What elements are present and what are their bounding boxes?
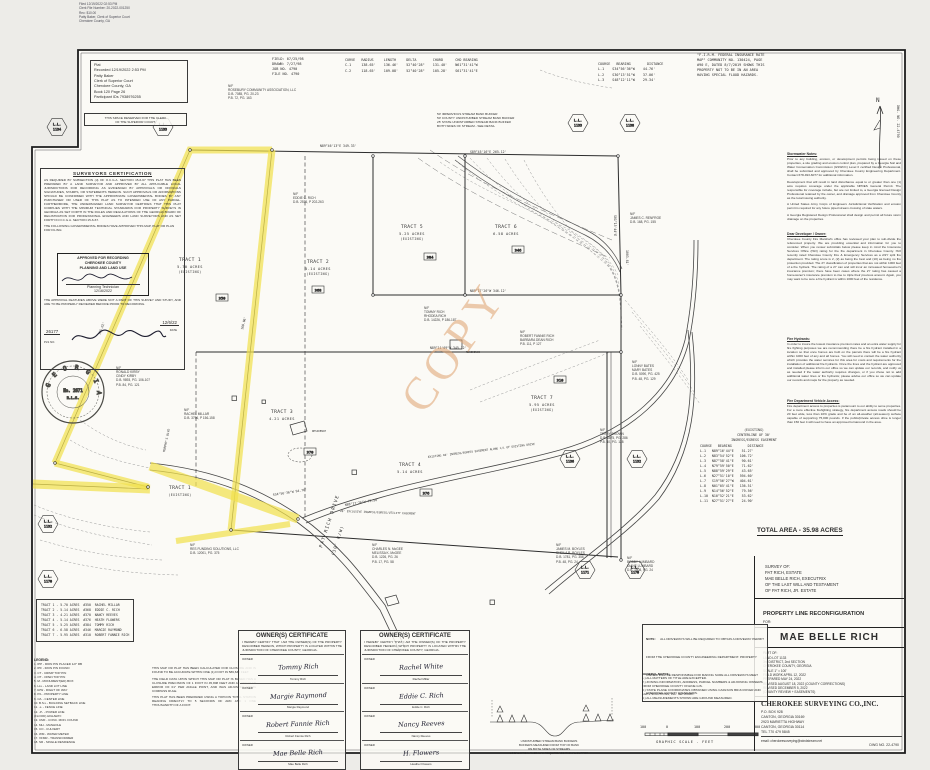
- owner-printed-name: Heather Flowers: [380, 761, 462, 767]
- firm-flood-note: "F.I.R.M. FEDERAL INSURANCE RATEMAP" COM…: [697, 53, 827, 77]
- ll-num: 1138: [626, 124, 634, 128]
- clerk-reserved-box: THIS SPACE RESERVED FOR THE CLERKOF THE …: [84, 113, 187, 126]
- tract-name: TRACT 2: [288, 260, 348, 267]
- owner-label: OWNER: [364, 743, 375, 747]
- adjoiner-line: P.B. 48, PG. 24: [556, 560, 585, 564]
- date-label: DATE: [170, 328, 177, 332]
- bearing-label: 1003.81': [625, 250, 629, 265]
- owner-certificate-right: OWNER(S) CERTIFICATE I HEREBY CERTIFY TH…: [360, 630, 470, 770]
- owner-label: OWNER: [242, 686, 253, 690]
- adjoiner-mcgee: N/FCHARLES N. McGEEMELISSA K. McGEED.B. …: [372, 543, 403, 564]
- adjoiner-line: P.B. 40, PG. 128: [600, 440, 628, 444]
- adjoiner-rosebury: N/FROSEBURY COMMUNITY ASSOCIATION, LLCD.…: [228, 84, 296, 101]
- scanned-plat-page: { "filing_stamp": { "lines": ["Filed 12/…: [0, 0, 930, 768]
- approval-date: 12/16/2022: [60, 289, 146, 293]
- tract-name: TRACT 4: [380, 463, 440, 470]
- owner-printed-name: Nancy Reeves: [380, 732, 462, 738]
- efiling-stamp-line: Cherokee County, GA: [79, 19, 130, 23]
- tract-acres: 4.21 ACRES: [252, 417, 312, 422]
- tract-5-label: TRACT 5 5.25 ACRES (EXISTING): [382, 225, 442, 242]
- adjoiner-line: P.B. 111, P 127: [520, 342, 554, 346]
- firm-note-line: HAVING SPECIAL FLOOD HAZARDS.: [697, 73, 827, 78]
- legend-item: 18. SR - SINGLE RESIDENCE: [34, 740, 146, 744]
- tract-name: TRACT 5: [382, 225, 442, 232]
- owner-cert-title: OWNER(S) CERTIFICATE: [362, 632, 468, 640]
- owner-cert-body: I HEREBY CERTIFY THAT I AM THE OWNER(S) …: [240, 640, 344, 654]
- buffer-detail-line: LOCAL ORDINANCE MAY REQUIRE ADDITIONAL B…: [478, 752, 620, 756]
- owner-signature: Robert Fannie Rich: [266, 719, 330, 729]
- ll-num: 1132: [44, 525, 52, 529]
- stream-buffer-note: 50' IMPERVIOUS STREAM BANK BUFFER50' COU…: [437, 112, 514, 128]
- tract-name: TRACT 7: [512, 396, 572, 403]
- ll-num: 1171: [581, 571, 589, 575]
- owner-signature: Rachel White: [399, 662, 443, 672]
- ll-num: 1170: [44, 580, 52, 584]
- address-label: 384: [427, 255, 435, 260]
- general-note-item: 4.) ALL MEASUREMENTS SHOWN ARE GROUND ME…: [642, 696, 764, 700]
- ll-num: 1133: [574, 124, 582, 128]
- scale-tick-label: 0: [666, 725, 668, 729]
- owner-signature: Nancy Reeves: [398, 719, 445, 729]
- buffer-detail-caption: UNDISTURBED STREAM BANK BUFFERSBUFFERS M…: [478, 740, 620, 756]
- adjoiner-line: P.B. 48, PG. 129: [632, 377, 660, 381]
- signature-date: 12/6/22: [160, 320, 179, 326]
- owner-printed-name: Tommy Rich: [258, 675, 338, 681]
- stormwater-notes: Stormwater Notes: Prior to any building,…: [787, 152, 901, 223]
- owner-row: OWNER Eddie C. Rich Eddie C. Rich: [362, 683, 468, 712]
- ll-num: 1136: [566, 460, 574, 464]
- tract-name: TRACT 1: [160, 258, 220, 265]
- survey-of-line: OF PAT RICH, JR. ESTATE: [765, 588, 904, 594]
- firm-address-line: TEL 770 479 5845: [761, 730, 902, 735]
- firm-address: P.O. BOX 928CANTON, GEORGIA 301692923 MA…: [761, 710, 902, 734]
- ll-num: 1132: [633, 460, 641, 464]
- tract-6-label: TRACT 6 6.58 ACRES: [476, 225, 536, 237]
- curve-table-row: C-2 118.65' 109.08' 52°40'28" 105.28' S6…: [345, 69, 478, 74]
- adjoiner-line: D.B. 12001, PG. 375: [190, 551, 239, 555]
- adjoiner-line: P.B. 84, PG. 121: [116, 383, 150, 387]
- tract-status: (EXISTING): [288, 272, 348, 277]
- easement-table-row: L-11 N27°51'27"E 24.90': [700, 499, 808, 504]
- approval-signature-space: [60, 271, 146, 284]
- owner-label: OWNER: [242, 714, 253, 718]
- stormwater-paragraph: Development that will result in land dis…: [787, 180, 901, 200]
- adjoiner-lumbard: N/FBOBBY LUMBARDDIANE LUMBARDD.B. 1508, …: [627, 556, 654, 573]
- general-notes: GENERAL NOTES: 1.) ALL MATTERS OF TITLE …: [642, 672, 764, 700]
- bearing-label: S01°15'44"E: [613, 215, 617, 236]
- driveway-note-title: NOTE:: [646, 637, 656, 641]
- owner-printed-name: Margie Raymond: [258, 704, 338, 710]
- dwg-side-label: DWG. NO. 22-4790: [896, 105, 900, 138]
- field-info-line: FILE NO. 4790: [272, 72, 304, 77]
- ll-label: L.L.: [53, 123, 61, 127]
- efiling-stamp-line: Clerk File Number: 20-2022-001250: [79, 6, 130, 10]
- fire-access-note: Fire Department Vehicle Access: Fire dep…: [787, 399, 901, 427]
- general-note-item: 2.) ZONING INFORMATION, ADDRESS, PARCEL …: [642, 680, 764, 688]
- easement-table: (EXISTING)CENTERLINE OF 30'INGRESS/EGRES…: [700, 428, 808, 504]
- owner-row: OWNER Mae Belle Rich Mae Belle Rich: [240, 740, 344, 769]
- owner-row: OWNER Nancy Reeves Nancy Reeves: [362, 711, 468, 740]
- north-label: N: [876, 97, 880, 104]
- adjoiner-millar: N/FRACHEL MILLARD.B. 3796, P 156-158: [184, 408, 215, 420]
- scale-tick-label: 200: [724, 725, 730, 729]
- part-of-block: PART OF:LAND LOT 11333rd DISTRICT, 2nd S…: [755, 647, 904, 696]
- address-label: 370: [307, 450, 315, 455]
- stream-buffer-note-line: BOTH SIDES OF STREAM - SEE DETAIL: [437, 124, 514, 128]
- tract-summary-row: TRACT 2 - 5.14 ACRES #368 EDDIE C. RICH: [41, 608, 129, 613]
- ll-label: L.L.: [566, 455, 574, 459]
- tract-summary-row: TRACT 7 - 5.95 ACRES #310 ROBERT FANNIE …: [41, 633, 129, 638]
- pls-label: PLS NO.: [44, 340, 181, 344]
- address-label: 350: [219, 296, 227, 301]
- for-label: FOR:: [763, 620, 900, 625]
- certification-body: AS REQUIRED BY SUBSECTION (d) OF O.C.G.A…: [44, 178, 181, 222]
- owner-signature: Margie Raymond: [269, 691, 326, 701]
- ll-label: L.L.: [633, 455, 641, 459]
- owner-printed-name: Mae Belle Rich: [258, 761, 338, 767]
- owner-cert-body: I HEREBY CERTIFY THAT I AM THE OWNER(S) …: [362, 640, 468, 654]
- adjoiner-line: D.B. 2576, P 202-263: [293, 200, 324, 204]
- fire-hydrant-title: Fire Hydrants:: [787, 337, 901, 341]
- owner-row: OWNER Tommy Rich Tommy Rich: [240, 654, 344, 683]
- firm-email: email: cherokeesurveying@windstream.net: [761, 736, 902, 743]
- bearing-label: S89°45'16"E 265.12': [470, 150, 507, 154]
- total-area: TOTAL AREA - 35.98 ACRES: [757, 527, 843, 536]
- developer-letter-title: Dear Developer / Owner:: [787, 232, 901, 236]
- bearing-label: N89°46'13"E 349.33': [320, 144, 357, 148]
- ll-label: L.L.: [44, 575, 52, 579]
- adjoiner-line: D.B. 3796, P 156-158: [184, 416, 215, 420]
- legend: LEGEND: 1. IPP - IRON PIN PLACED 1/2" RB…: [34, 658, 146, 745]
- owner-signature: Tommy Rich: [278, 662, 319, 671]
- adjoiner-renfroe: N/FJAMES C. RENFROED.B. 168, PG. 155: [630, 212, 661, 224]
- owner-row: OWNER Rachel White Rachel Millar: [362, 654, 468, 683]
- easement-table-title-line: INGRESS/EGRESS EASEMENT: [700, 438, 808, 443]
- owner-label: OWNER: [364, 686, 375, 690]
- owner-signature: H. Flowers: [403, 748, 439, 757]
- curve-table: CURVE RADIUS LENGTH DELTA CHORD CHD BEAR…: [345, 58, 478, 74]
- pls-number: 26177: [44, 329, 60, 335]
- tract-acres: 6.58 ACRES: [476, 232, 536, 237]
- ll-num: 1134: [53, 128, 61, 132]
- tract-4-label: TRACT 4 5.14 ACRES: [380, 463, 440, 475]
- adjoiner-res-funding: N/FRES FUNDING SOLUTIONS, LLCD.B. 12001,…: [190, 543, 239, 555]
- stormwater-paragraph: A United States Army Corps of Engineers …: [787, 202, 901, 210]
- adjoiner-line: P.B. 17, PG. 58: [372, 560, 403, 564]
- adjoiner-line: D.B. 168, PG. 155: [630, 220, 661, 224]
- stormwater-paragraph: Prior to any building, erosion, or devel…: [787, 157, 901, 177]
- owner-cert-title: OWNER(S) CERTIFICATE: [240, 632, 344, 640]
- fire-access-title: Fire Department Vehicle Access:: [787, 399, 901, 403]
- survey-of-block: SURVEY OF:PAT RICH, ESTATEMAE BELLE RICH…: [755, 556, 904, 598]
- tract-summary-table: TRACT 1 - 5.70 ACRES #350 RACHEL MILLART…: [36, 599, 134, 642]
- owner-signature: Mae Belle Rich: [273, 748, 323, 758]
- scale-tick-label: 300: [754, 725, 760, 729]
- adjoiner-brown: N/FTERRY BROWND.B. 6875, PG. 286P.B. 40,…: [600, 428, 628, 445]
- owner-signature: Eddie C. Rich: [398, 691, 443, 701]
- field-info: FIELD: 07/25/98DRAWN: 7/27/98JOB NO. 479…: [272, 57, 304, 77]
- reconfiguration-title: PROPERTY LINE RECONFIGURATION: [763, 611, 864, 617]
- owner-row: OWNER Robert Fannie Rich Robert Fannie R…: [240, 711, 344, 740]
- address-label: 376: [423, 491, 431, 496]
- owner-certificate-left: OWNER(S) CERTIFICATE I HEREBY CERTIFY TH…: [238, 630, 346, 770]
- fire-hydrant-paragraph: In order to insure the lowest insurance …: [787, 342, 901, 382]
- owner-printed-name: Eddie C. Rich: [380, 704, 462, 710]
- tract-status: (EXISTING): [150, 493, 210, 498]
- seal-number: No. 2671: [63, 388, 83, 393]
- clerk-reserved-line: OF THE SUPERIOR COURT.: [87, 120, 185, 124]
- owner-label: OWNER: [242, 743, 253, 747]
- owner-row: OWNER H. Flowers Heather Flowers: [362, 740, 468, 769]
- title-block: SURVEY OF:PAT RICH, ESTATEMAE BELLE RICH…: [754, 556, 904, 751]
- scale-caption: GRAPHIC SCALE - FEET: [656, 739, 714, 744]
- tract-7-label: TRACT 7 5.95 ACRES (EXISTING): [512, 396, 572, 413]
- scale-tick-label: 100: [640, 725, 646, 729]
- adjoiner-eddie-rich: N/FEDDIE C. RICHD.B. 2576, P 202-263: [293, 192, 324, 204]
- dwg-number: DWG NO. 22-4790: [761, 743, 902, 748]
- owner-printed-name: Rachel Millar: [380, 675, 462, 681]
- course-table: COURSE BEARING DISTANCE L-1 S34°56'36"W …: [598, 62, 663, 84]
- owner-label: OWNER: [364, 657, 375, 661]
- address-label: 310: [557, 378, 565, 383]
- developer-letter: Dear Developer / Owner: Cherokee County …: [787, 232, 901, 284]
- ll-label: L.L.: [574, 119, 582, 123]
- seal-sub: R.L.S.: [67, 396, 79, 400]
- tract-summary-row: TRACT 1 - 5.70 ACRES #350 RACHEL MILLAR: [41, 603, 129, 608]
- recording-stamp-box: PlatRecorded 12/19/2022 2:53 PMPatty Bak…: [90, 60, 188, 103]
- efiling-stamp: Filed 12/19/2022 02:53 PMClerk File Numb…: [79, 2, 130, 24]
- adjoiner-bates: N/FLONNY BATESMARY BATESD.B. 5090, PG. 4…: [632, 360, 660, 381]
- client-name: MAE BELLE RICH: [755, 627, 904, 647]
- address-label: 346: [515, 248, 523, 253]
- tract-name: TRACT 1: [150, 486, 210, 493]
- adjoiner-line: P.B. 72, PG. 163: [228, 96, 296, 100]
- ll-label: L.L.: [626, 119, 634, 123]
- stormwater-title: Stormwater Notes:: [787, 152, 901, 156]
- ll-num: 1133: [159, 128, 167, 132]
- part-of-line: (COUNTY REVIEW + EASEMENTS): [763, 690, 902, 694]
- tract-acres: 5.14 ACRES: [380, 470, 440, 475]
- owner-row: OWNER Margie Raymond Margie Raymond: [240, 683, 344, 712]
- fire-access-paragraph: Fire department access to properties is …: [787, 404, 901, 424]
- tract-1b-label: TRACT 1 (EXISTING): [150, 486, 210, 498]
- tract-2-label: TRACT 2 5.14 ACRES (EXISTING): [288, 260, 348, 277]
- stormwater-paragraph: A Georgia Registered Design Professional…: [787, 213, 901, 221]
- certification-title: SURVEYORS CERTIFICATION: [44, 171, 181, 176]
- ll-label: L.L.: [581, 566, 589, 570]
- scale-tick-label: 100: [694, 725, 700, 729]
- fire-hydrant-note: Fire Hydrants: In order to insure the lo…: [787, 337, 901, 385]
- owner-label: OWNER: [364, 714, 375, 718]
- certification-post-note: THE APPROVAL FEATURES ABOVE WERE NOT A P…: [44, 298, 181, 306]
- tract-status: (EXISTING): [512, 408, 572, 413]
- developer-letter-paragraph: Cherokee County Fire Marshal's office ha…: [787, 237, 901, 281]
- tract-status: (EXISTING): [382, 237, 442, 242]
- general-note-item: 3.) STATE PLANE COORDINATES OBTAINED USI…: [642, 688, 764, 696]
- owner-printed-name: Robert Fannie Rich: [258, 732, 338, 738]
- firm-name: CHEROKEE SURVEYING CO.,INC.: [761, 700, 902, 708]
- owner-label: OWNER: [242, 657, 253, 661]
- tract-1-label: TRACT 1 5.70 ACRES (EXISTING): [160, 258, 220, 275]
- ll-label: L.L.: [44, 520, 52, 524]
- recording-stamp-line: Participant IDs 7938976255: [94, 95, 184, 100]
- adjoiner-kirby: N/FRONALD KIRBYCINDY KIRBYD.B. 9893, PG.…: [116, 366, 150, 387]
- address-label: 368: [315, 288, 323, 293]
- certification-filing-line: THE FOLLOWING GOVERNMENTAL BODIES HAVE A…: [44, 224, 181, 232]
- residence-label: RESIDENCE: [312, 429, 326, 433]
- approval-stamp: APPROVED FOR RECORDINGCHEROKEE COUNTYPLA…: [57, 253, 149, 296]
- adjoiner-robert-rich: N/FROBERT FANNIE RICHBARBARA DEAN RICHP.…: [520, 330, 554, 347]
- adjoiner-boyles: N/FJAMES M. BOYLESSHEILA R. BOYLESD.B. 1…: [556, 543, 585, 564]
- adjoiner-line: D.B. 1508, PG. 24: [627, 568, 654, 572]
- tract-status: (EXISTING): [160, 270, 220, 275]
- course-table-row: L-3 S48°12'11"W 29.34': [598, 78, 663, 83]
- tract-3-label: TRACT 3 4.21 ACRES: [252, 410, 312, 422]
- tract-name: TRACT 6: [476, 225, 536, 232]
- tract-name: TRACT 3: [252, 410, 312, 417]
